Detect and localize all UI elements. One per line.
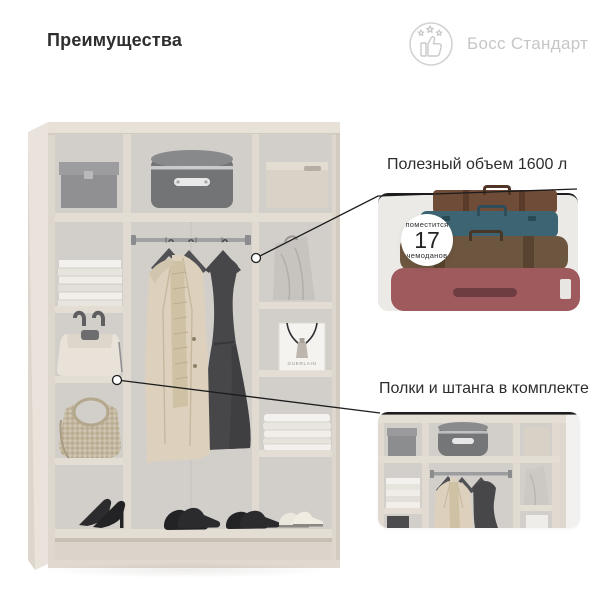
guerlain-label: GUERLAIN [287, 361, 316, 366]
brand-logo: Босс Стандарт [408, 21, 588, 67]
page-title: Преимущества [47, 30, 182, 51]
infographic-page: Преимущества Босс Стандарт [0, 0, 610, 610]
badge-number: 17 [414, 229, 440, 252]
callout-volume-title: Полезный объем 1600 л [387, 156, 567, 174]
checkered-bag [59, 399, 121, 458]
suitcase-maroon [391, 268, 580, 311]
guerlain-bag: GUERLAIN [279, 323, 325, 371]
round-hat-box [151, 150, 233, 208]
shelves-closeup-card [378, 412, 580, 528]
callout-included-title: Полки и штанга в комплекте [379, 380, 589, 398]
brand-name: Босс Стандарт [467, 34, 588, 54]
wardrobe-illustration: GUERLAIN [23, 114, 343, 579]
shelves-closeup-image [378, 412, 580, 528]
beige-coat [145, 255, 210, 463]
folded-linens-left [58, 260, 122, 306]
folded-towels-right [263, 414, 331, 450]
beige-box [266, 162, 328, 208]
thumbs-up-stars-icon [408, 21, 454, 67]
badge-line-bottom: чемоданов [407, 252, 448, 260]
capacity-badge: поместится 17 чемоданов [401, 214, 453, 266]
wardrobe-shadow [40, 562, 332, 578]
gray-storage-box [59, 162, 119, 208]
